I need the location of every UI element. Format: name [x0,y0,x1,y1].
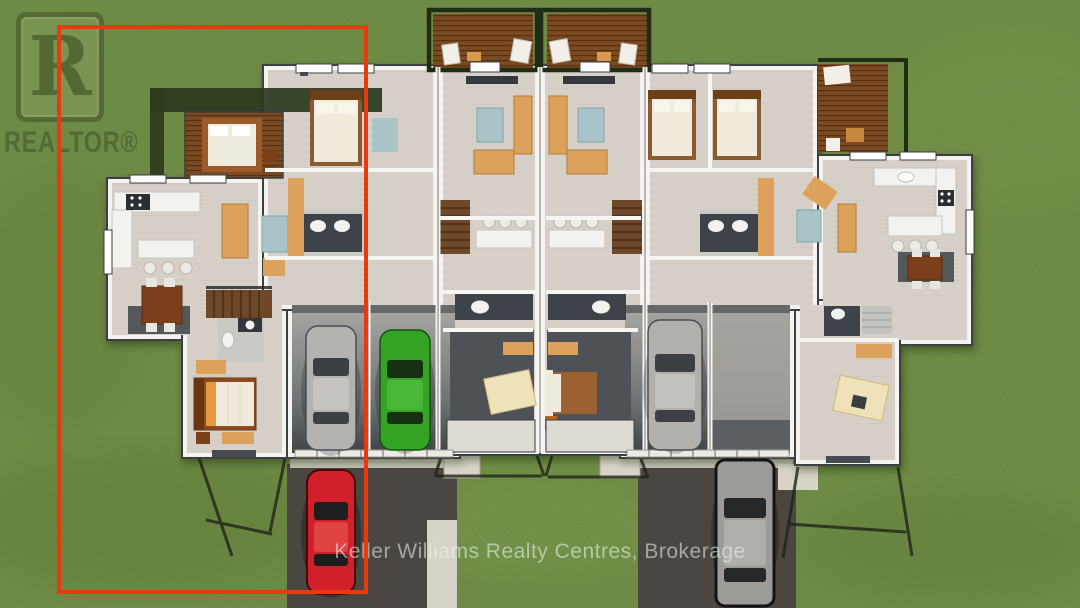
nightstand-bottom-left [196,432,210,444]
blue-table-left [262,216,288,252]
sofa-center-left [514,96,532,154]
bed-upper-right-2 [713,90,761,160]
coffee-table-center-right [578,108,604,142]
blue-table-right [797,210,821,242]
coffee-table-center-left [477,108,503,142]
loveseat-center-right [567,150,607,174]
floorplan-render [0,0,1080,608]
bench-bottom-right [856,344,892,358]
bath-upper-right [700,214,760,252]
red-car-driveway [301,470,361,598]
island-right [888,216,942,236]
bookshelf-right [838,204,856,252]
gray-suv-driveway [711,460,779,608]
stairs-left [206,286,272,318]
aerial-floorplan-scene: R REALTOR® Keller Williams Realty Centre… [0,0,1080,608]
stove-left [126,194,150,210]
porch-roof-center-left [447,420,535,452]
kitchen-center-right [549,216,605,248]
bed-bottom-left [194,378,256,430]
loveseat-center-left [474,150,514,174]
kitchen-center-left [476,216,532,248]
gray-car-right-garage [643,320,707,454]
stairs-center-left [440,200,470,254]
blue-rug-upper-left [372,118,398,152]
bench-bottom-left [222,432,254,444]
sofa-center-right [549,96,567,154]
walkway-path [427,520,457,608]
bath-center-right [548,294,626,320]
bench-center-right [548,342,578,355]
bath-upper-left [302,214,362,252]
bed-upper-right-1 [648,90,696,160]
deck-room-bed [202,118,262,172]
green-car-garage [375,330,435,454]
bench-center-left [503,342,533,355]
bath-center-left [455,294,533,320]
bookshelf-left [222,204,248,258]
stove-right [938,190,954,206]
armchair-left [263,258,285,276]
gray-car-left-garage [301,326,361,456]
bed-upper-left [310,90,362,166]
island-left [138,240,194,258]
stairs-center-right [612,200,642,254]
porch-roof-center-right [546,420,634,452]
